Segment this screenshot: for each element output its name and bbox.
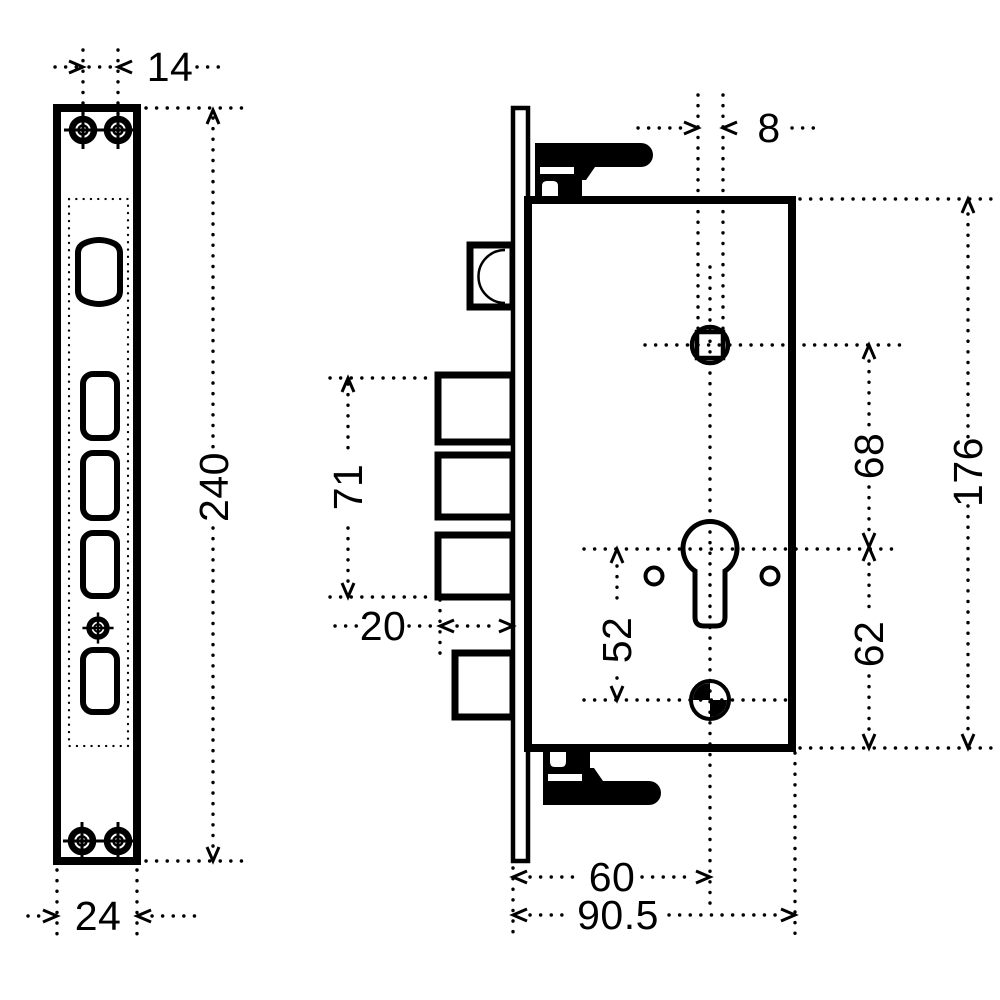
deadbolt-3 [438,535,513,597]
lock-case-side-view [438,108,792,861]
latch-cutout [78,240,120,304]
lock-technical-drawing: 14 240 24 8 71 20 52 68 62 176 60 90.5 [0,0,1000,1000]
dim-label-62: 62 [846,621,892,668]
dim-label-176: 176 [945,437,991,507]
faceplate-front-view [57,108,137,861]
dim-label-71: 71 [325,464,371,511]
dim-label-20: 20 [360,603,407,649]
deadbolt-2 [438,455,513,517]
dim-label-68: 68 [846,433,892,480]
top-rod-lever [535,143,653,199]
deadbolt-cutout-1 [83,374,117,438]
dim-label-52: 52 [594,617,640,664]
dim-label-24: 24 [75,893,122,939]
dim-label-90-5: 90.5 [577,892,659,938]
deadbolt-cutout-3 [83,533,117,596]
dim-label-14: 14 [147,44,194,90]
dim-label-8: 8 [757,105,780,151]
deadbolt-cutout-2 [83,453,117,518]
bottom-bolt [455,653,513,717]
drawing-canvas: 14 240 24 8 71 20 52 68 62 176 60 90.5 [0,0,1000,1000]
lock-case-outline [528,200,792,748]
bottom-rod-lever [543,749,661,805]
deadbolt-1 [438,375,513,442]
dim-label-240: 240 [191,452,237,522]
bottom-bolt-cutout [83,650,117,712]
